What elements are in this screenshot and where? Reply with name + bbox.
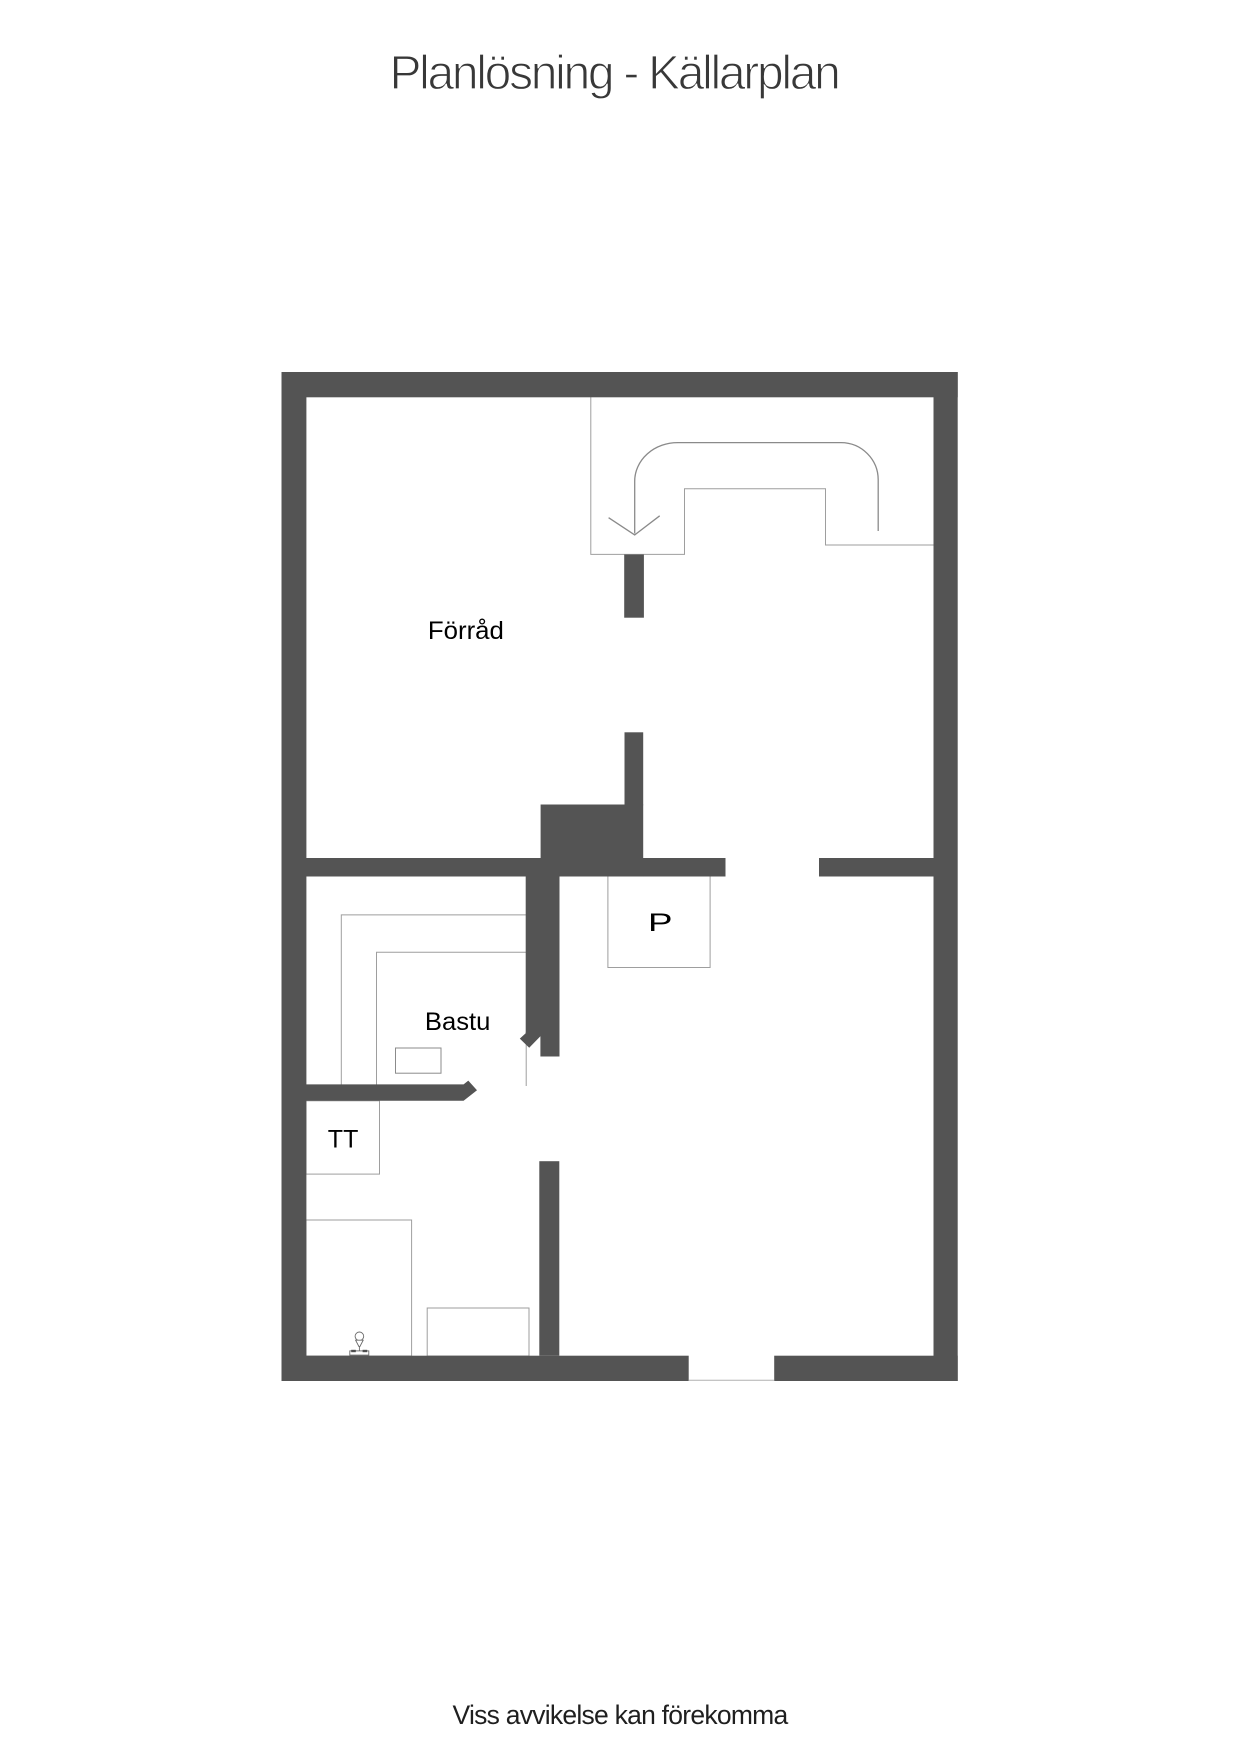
svg-text:Förråd: Förråd [428,617,504,645]
svg-text:P: P [648,909,673,937]
svg-text:TT: TT [328,1126,359,1154]
svg-text:Bastu: Bastu [425,1008,491,1036]
